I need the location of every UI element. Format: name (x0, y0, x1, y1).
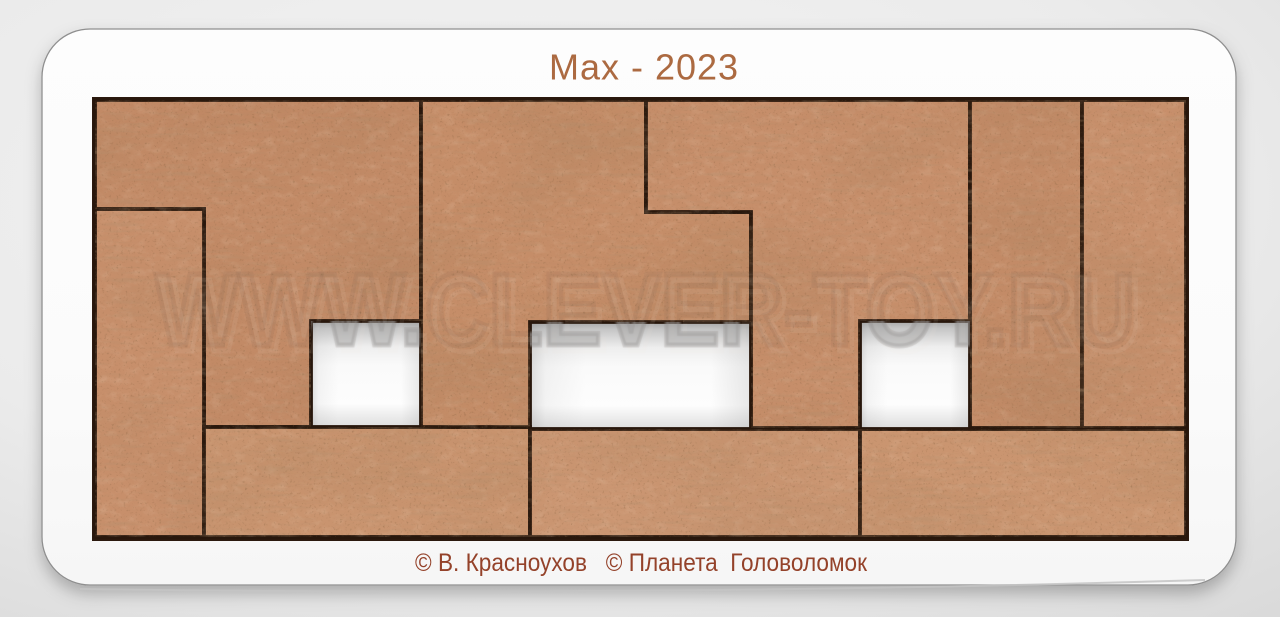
svg-text:Max - 2023: Max - 2023 (549, 47, 739, 88)
svg-text:© В. Красноухов © Планета Г: © В. Красноухов © Планета Головоломок (415, 549, 868, 577)
